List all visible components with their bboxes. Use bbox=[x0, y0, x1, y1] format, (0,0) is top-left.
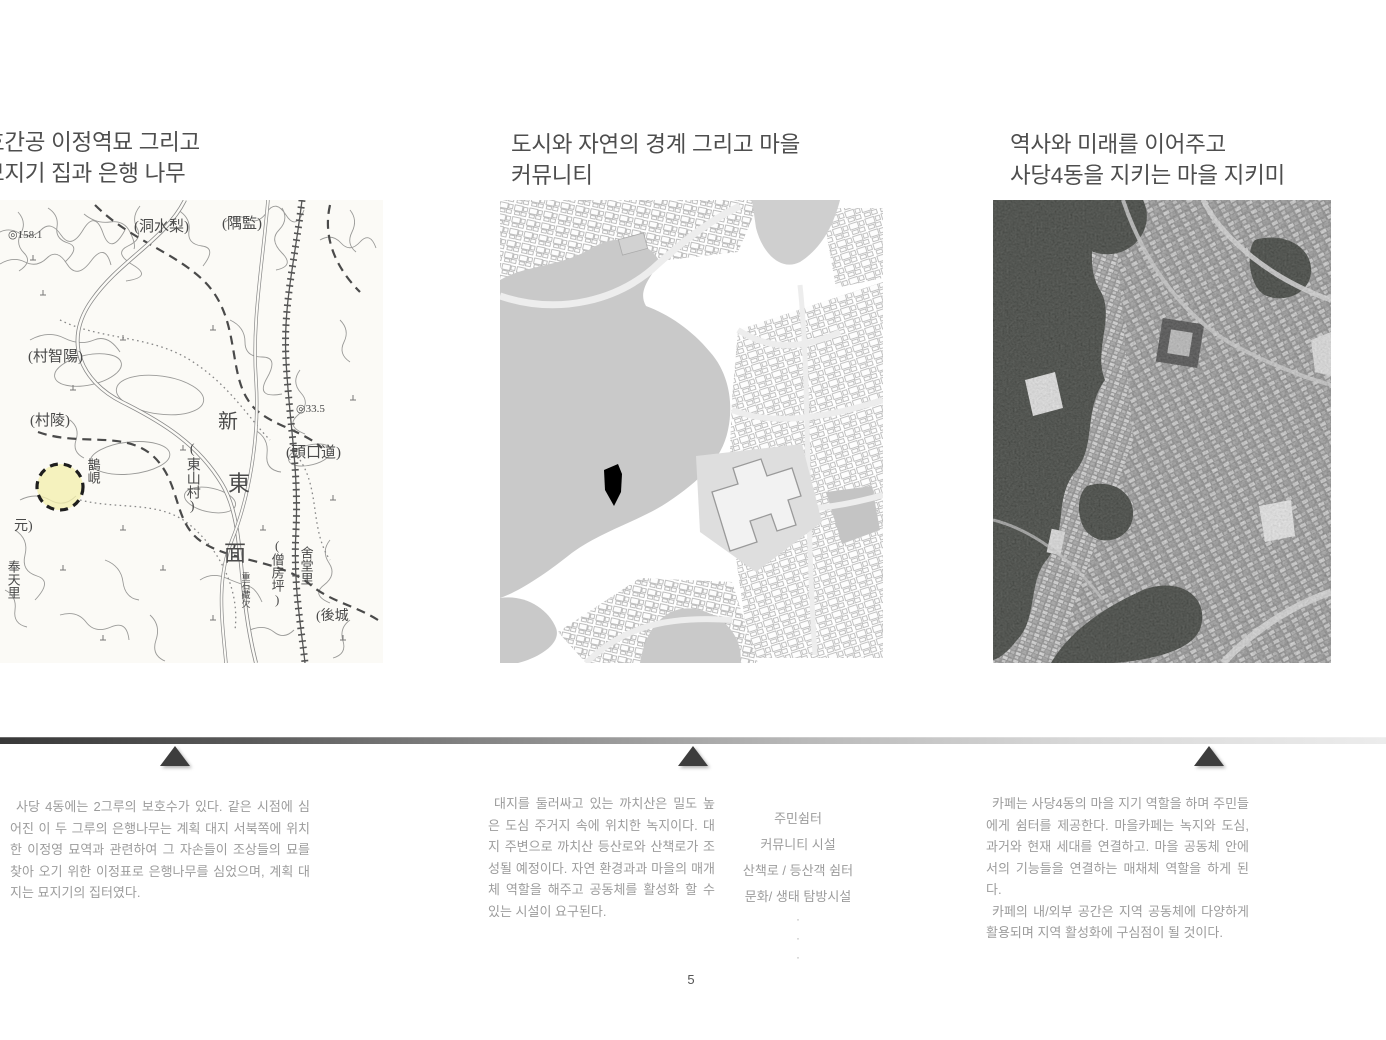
timeline-gradient-bar bbox=[0, 737, 1386, 744]
map-label: (村智陽) bbox=[28, 350, 83, 366]
aerial-photo-drawing bbox=[993, 200, 1331, 663]
title-line: 역사와 미래를 이어주고 bbox=[1010, 129, 1285, 160]
map-label: ◎158.1 bbox=[8, 230, 42, 242]
map-label: 重石藏欠 bbox=[240, 572, 249, 608]
map-label: 新 bbox=[218, 412, 238, 433]
description-paragraph: 카페는 사당4동의 마을 지기 역할을 하며 주민들에게 쉼터를 제공한다. 마… bbox=[986, 793, 1249, 901]
figure-ground-map bbox=[500, 200, 883, 663]
title-line: 효간공 이정역묘 그리고 bbox=[0, 127, 200, 158]
map-label: (隅監) bbox=[222, 217, 262, 233]
map-label: (村陵) bbox=[30, 414, 70, 430]
map-label: (僧房坪) bbox=[270, 538, 284, 607]
panel-description-community: 카페는 사당4동의 마을 지기 역할을 하며 주민들에게 쉼터를 제공한다. 마… bbox=[986, 793, 1249, 944]
panel-title-community: 역사와 미래를 이어주고 사당4동을 지키는 마을 지키미 bbox=[1010, 129, 1285, 191]
map-label: (東山村) bbox=[184, 442, 199, 514]
map-label: 奉天里 bbox=[6, 560, 20, 599]
title-line: 묘지기 집과 은행 나무 bbox=[0, 158, 200, 189]
title-line: 사당4동을 지키는 마을 지키미 bbox=[1010, 160, 1285, 191]
description-paragraph: 사당 4동에는 2그루의 보호수가 있다. 같은 시점에 심어진 이 두 그루의… bbox=[10, 796, 310, 904]
ellipsis-dot: · bbox=[718, 948, 878, 967]
facility-list-item: 산책로 / 등산객 쉼터 bbox=[718, 858, 878, 884]
title-line: 도시와 자연의 경계 그리고 마을 bbox=[511, 129, 800, 160]
panel-description-nature: 대지를 둘러싸고 있는 까치산은 밀도 높은 도심 주거지 속에 위치한 녹지이… bbox=[488, 793, 715, 922]
figure-ground-drawing bbox=[500, 200, 883, 663]
map-label: ◎33.5 bbox=[296, 404, 325, 416]
map-label: 舍堂里 bbox=[299, 546, 313, 585]
site-highlight-circle bbox=[37, 464, 83, 510]
up-triangle-marker bbox=[678, 746, 708, 766]
photo-grain bbox=[993, 200, 1331, 663]
ellipsis-dot: · bbox=[718, 929, 878, 948]
up-triangle-marker bbox=[160, 746, 190, 766]
map-label: (後城 bbox=[316, 610, 349, 625]
map-label: 東 bbox=[228, 472, 250, 495]
description-paragraph: 대지를 둘러싸고 있는 까치산은 밀도 높은 도심 주거지 속에 위치한 녹지이… bbox=[488, 793, 715, 922]
map-label: (洞水梨) bbox=[134, 220, 189, 236]
map-label: 鵲峴 bbox=[86, 458, 100, 484]
map-label: (頭口道) bbox=[286, 446, 341, 462]
page-number: 5 bbox=[680, 972, 702, 987]
historic-topographic-map: ◎158.1 (洞水梨) (隅監) (村智陽) (村陵) ◎33.5 新 (頭口… bbox=[0, 200, 383, 663]
facility-list-item: 문화/ 생태 탐방시설 bbox=[718, 884, 878, 910]
title-line: 커뮤니티 bbox=[511, 160, 800, 191]
map-label: 面 bbox=[224, 542, 246, 565]
portfolio-page: 효간공 이정역묘 그리고 묘지기 집과 은행 나무 도시와 자연의 경계 그리고… bbox=[0, 0, 1386, 1040]
up-triangle-marker bbox=[1194, 746, 1224, 766]
aerial-photo-map bbox=[993, 200, 1331, 663]
panel-description-history: 사당 4동에는 2그루의 보호수가 있다. 같은 시점에 심어진 이 두 그루의… bbox=[10, 796, 310, 904]
facility-list-item: 커뮤니티 시설 bbox=[718, 832, 878, 858]
description-paragraph: 카페의 내/외부 공간은 지역 공동체에 다양하게 활용되며 지역 활성화에 구… bbox=[986, 901, 1249, 944]
ellipsis-dot: · bbox=[718, 910, 878, 929]
facility-list-item: 주민쉼터 bbox=[718, 806, 878, 832]
panel-title-nature: 도시와 자연의 경계 그리고 마을 커뮤니티 bbox=[511, 129, 800, 191]
panel-title-history: 효간공 이정역묘 그리고 묘지기 집과 은행 나무 bbox=[0, 127, 200, 189]
map-label: 元) bbox=[14, 520, 33, 535]
historic-map-drawing bbox=[0, 200, 383, 663]
facility-list: 주민쉼터 커뮤니티 시설 산책로 / 등산객 쉼터 문화/ 생태 탐방시설 · … bbox=[718, 806, 878, 967]
